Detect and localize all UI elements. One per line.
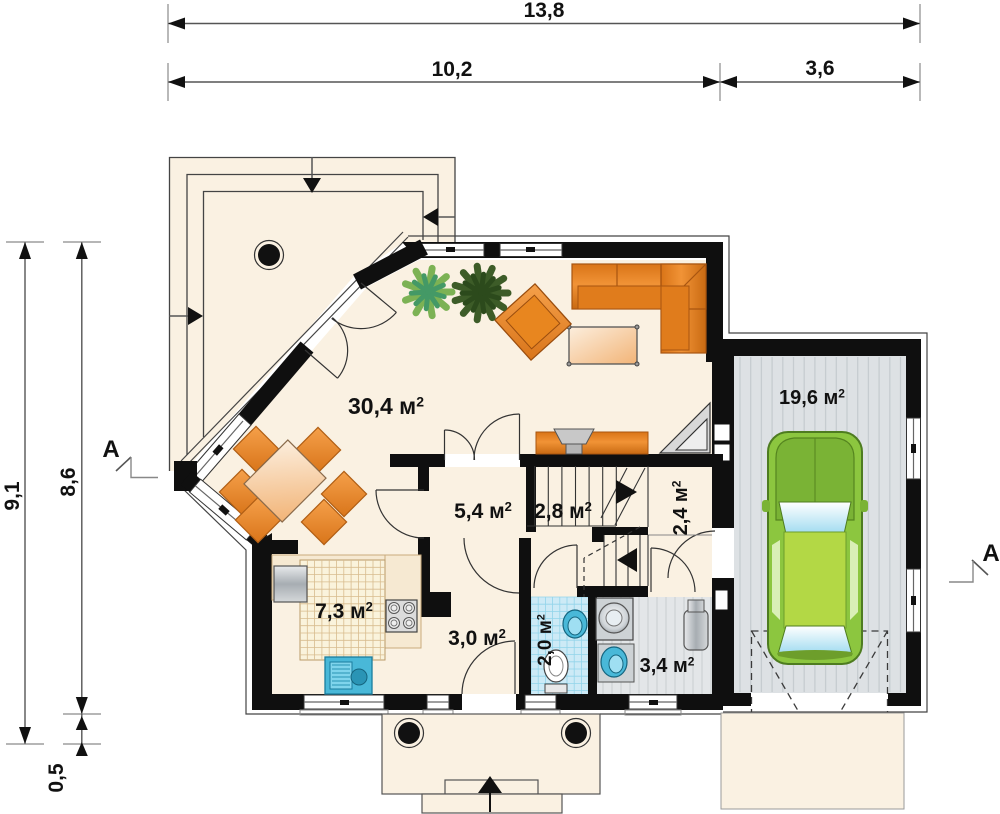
- svg-text:8,6: 8,6: [57, 467, 80, 496]
- svg-text:2,4 м2: 2,4 м2: [669, 480, 692, 535]
- svg-text:5,4 м2: 5,4 м2: [454, 499, 512, 523]
- svg-text:A: A: [102, 436, 119, 463]
- svg-text:3,0 м2: 3,0 м2: [448, 626, 506, 650]
- svg-text:2,8 м2: 2,8 м2: [534, 499, 592, 523]
- svg-text:30,4 м2: 30,4 м2: [348, 393, 424, 419]
- svg-text:10,2: 10,2: [432, 58, 473, 81]
- svg-text:2,0 м2: 2,0 м2: [535, 614, 556, 666]
- svg-text:9,1: 9,1: [1, 481, 24, 511]
- svg-text:13,8: 13,8: [524, 0, 565, 22]
- svg-text:3,6: 3,6: [805, 57, 834, 80]
- svg-text:7,3 м2: 7,3 м2: [315, 599, 373, 623]
- svg-text:0,5: 0,5: [45, 763, 68, 793]
- svg-text:19,6 м2: 19,6 м2: [779, 386, 845, 409]
- svg-text:A: A: [982, 540, 999, 567]
- svg-text:3,4 м2: 3,4 м2: [640, 654, 695, 677]
